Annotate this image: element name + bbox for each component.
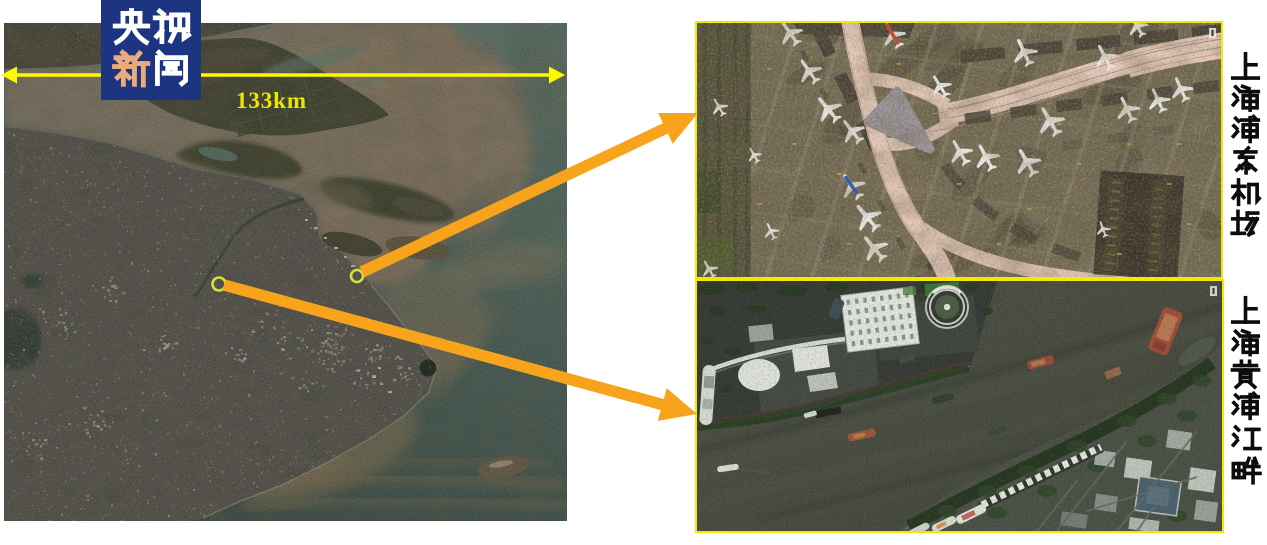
svg-text:133km: 133km bbox=[236, 88, 306, 113]
